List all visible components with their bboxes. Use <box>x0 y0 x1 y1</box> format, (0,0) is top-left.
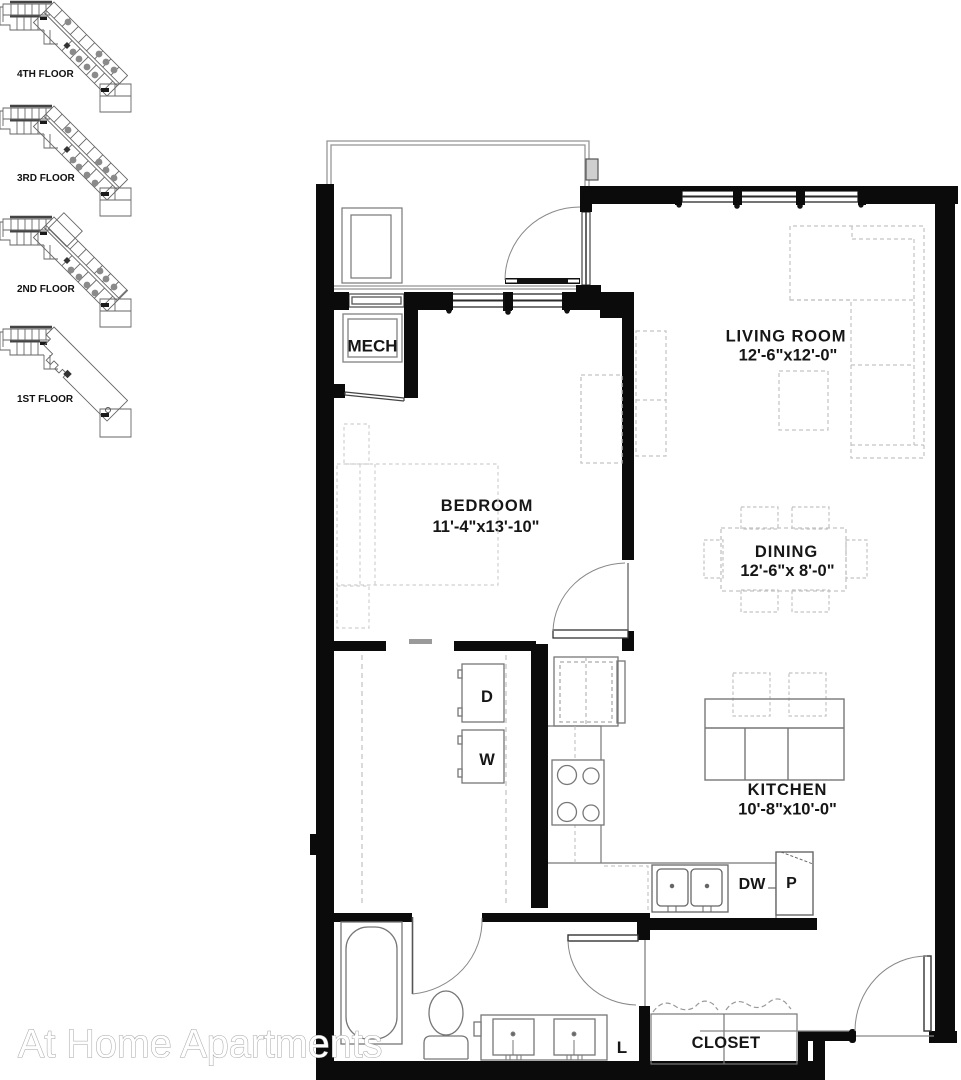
svg-text:KITCHEN: KITCHEN <box>748 781 828 799</box>
svg-text:LIVING ROOM: LIVING ROOM <box>726 328 847 346</box>
svg-text:11'-4"x13'-10": 11'-4"x13'-10" <box>433 518 540 536</box>
svg-text:At Home Apartments: At Home Apartments <box>18 1022 382 1066</box>
svg-text:12'-6"x 8'-0": 12'-6"x 8'-0" <box>740 562 834 580</box>
svg-text:12'-6"x12'-0": 12'-6"x12'-0" <box>739 347 838 365</box>
svg-text:3RD FLOOR: 3RD FLOOR <box>17 173 76 184</box>
svg-text:4TH FLOOR: 4TH FLOOR <box>17 69 74 80</box>
svg-text:BEDROOM: BEDROOM <box>441 497 533 515</box>
svg-text:W: W <box>479 751 495 769</box>
svg-text:2ND FLOOR: 2ND FLOOR <box>17 284 76 295</box>
svg-text:P: P <box>786 875 797 892</box>
svg-text:10'-8"x10'-0": 10'-8"x10'-0" <box>738 801 837 819</box>
svg-text:D: D <box>481 688 493 706</box>
svg-text:DW: DW <box>739 876 767 893</box>
svg-text:CLOSET: CLOSET <box>692 1034 761 1052</box>
svg-text:L: L <box>617 1038 627 1057</box>
svg-text:MECH: MECH <box>347 337 397 356</box>
svg-text:DINING: DINING <box>755 543 818 561</box>
svg-text:1ST FLOOR: 1ST FLOOR <box>17 394 74 405</box>
